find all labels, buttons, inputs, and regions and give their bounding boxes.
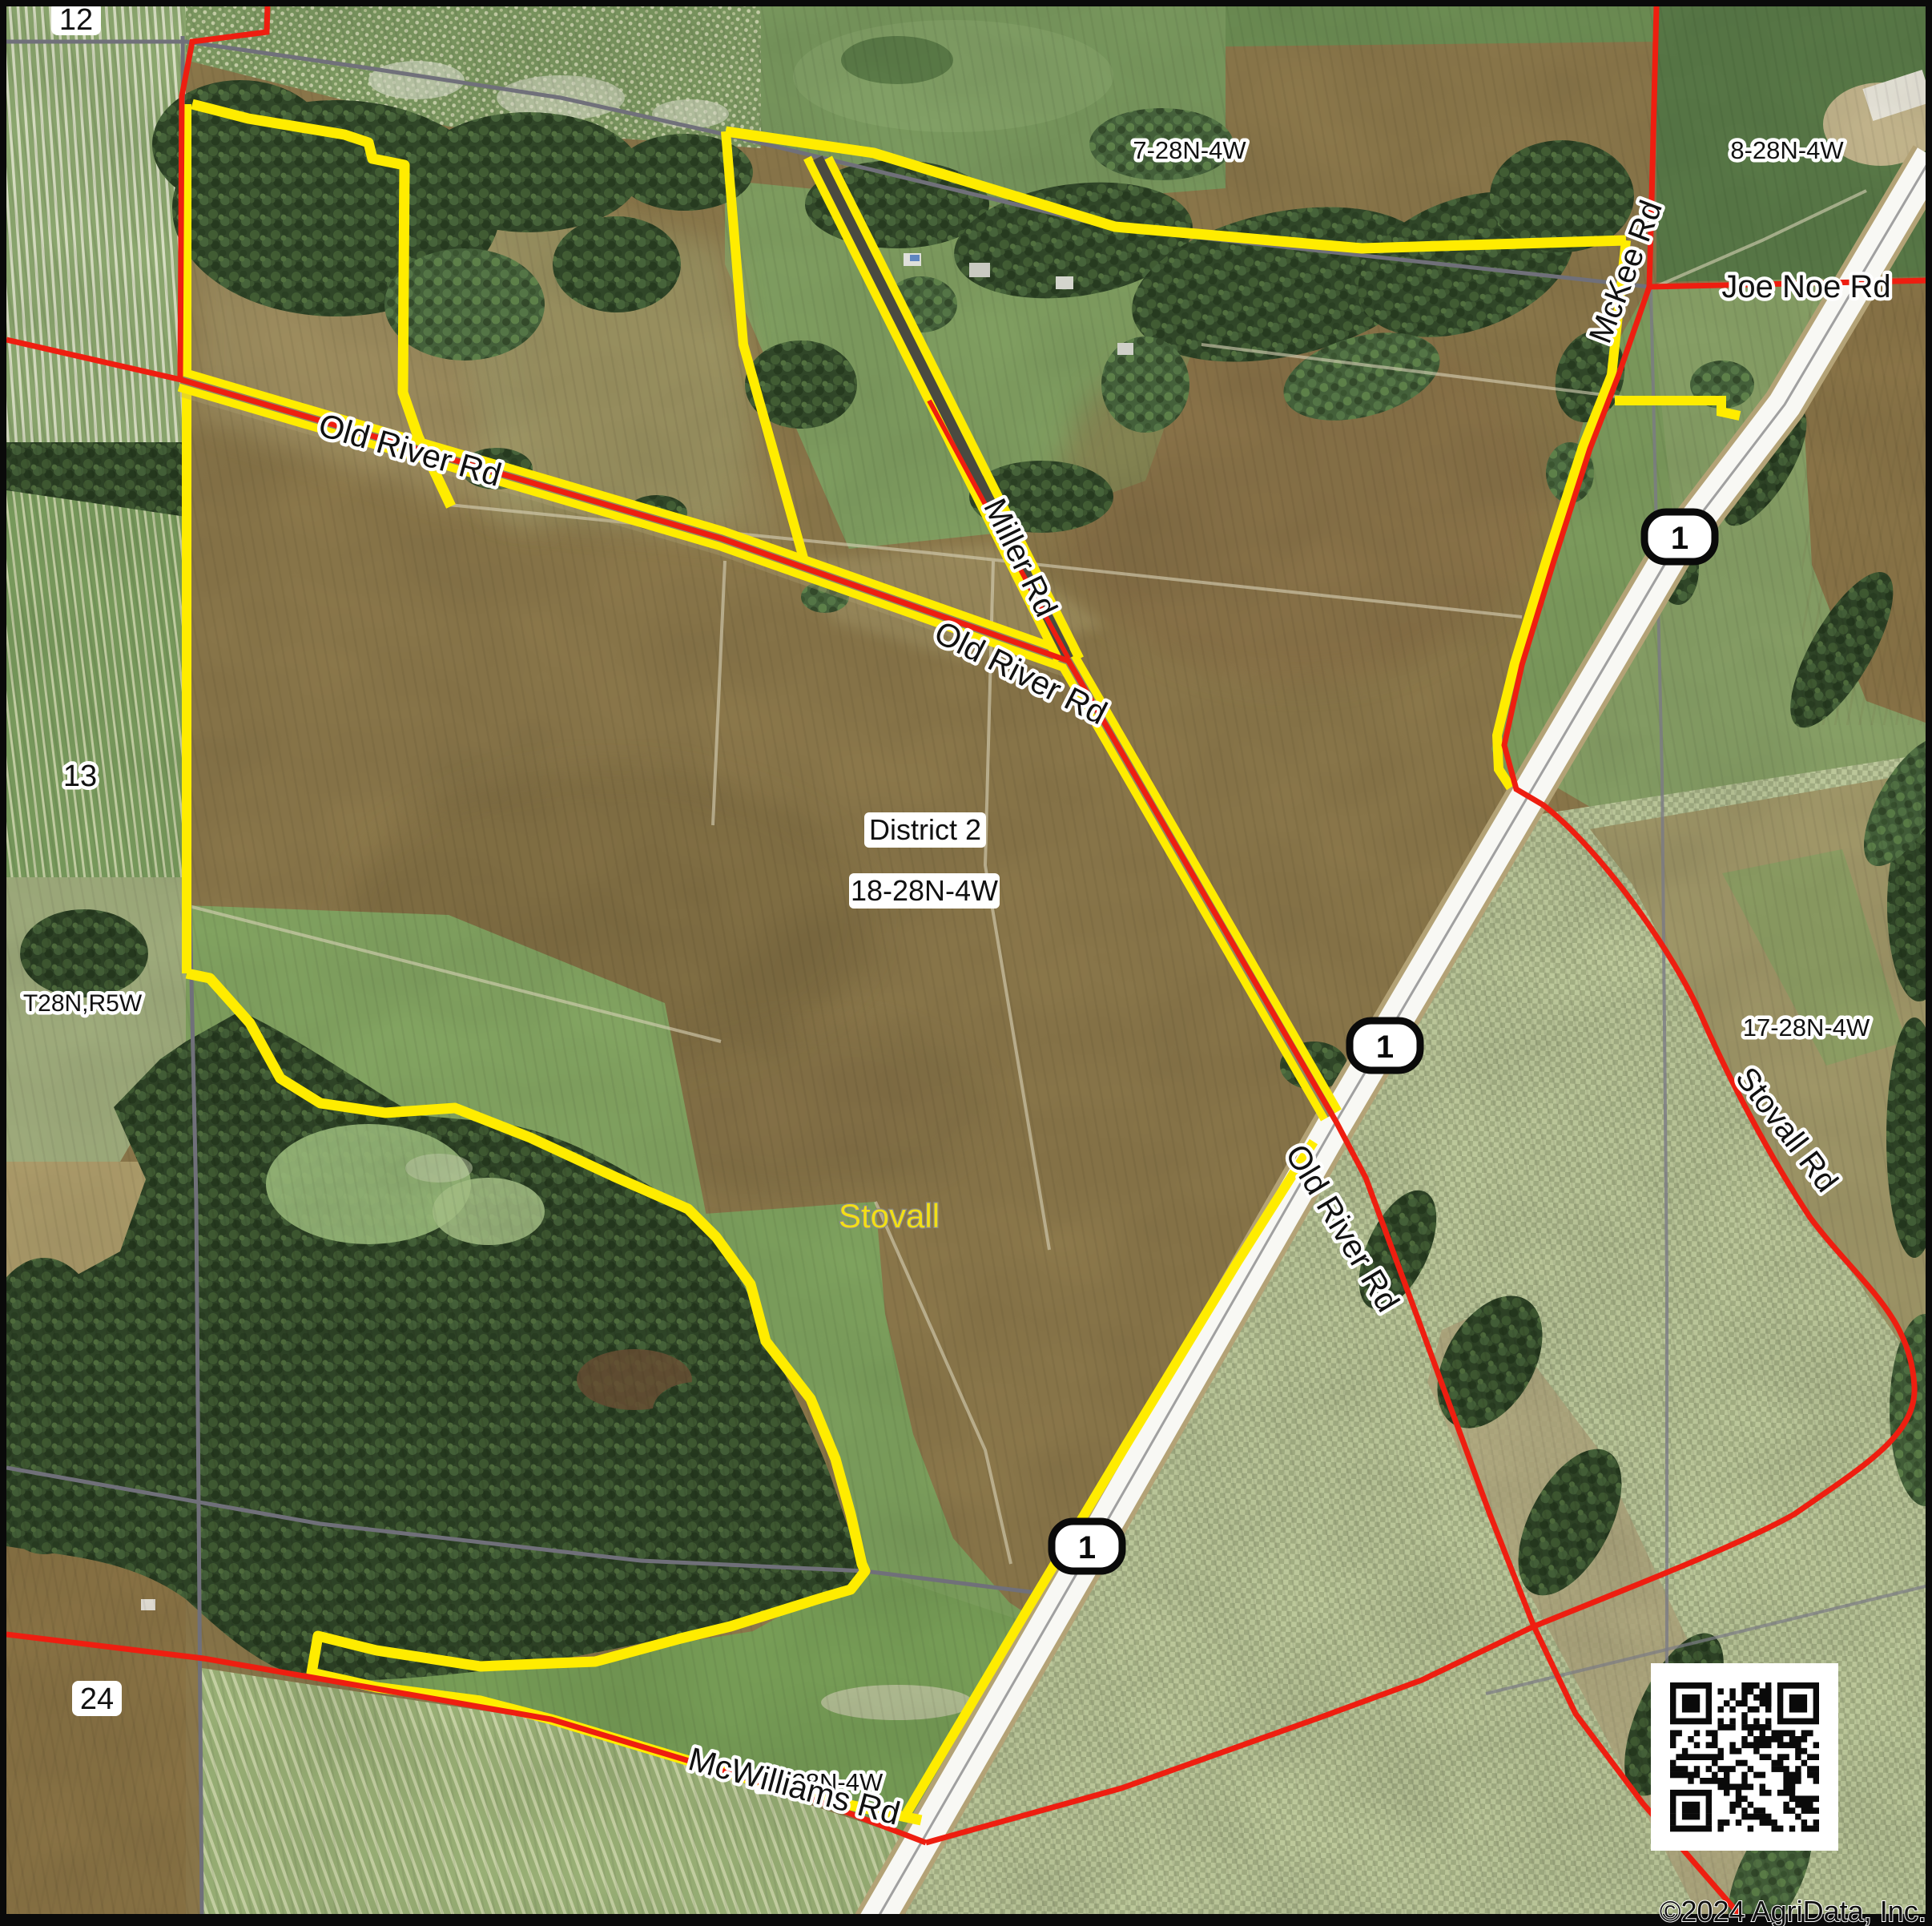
svg-text:1: 1 [1671, 521, 1688, 556]
svg-text:T28N,R5W: T28N,R5W [23, 990, 143, 1017]
svg-text:1: 1 [1078, 1530, 1096, 1565]
svg-text:13: 13 [63, 760, 97, 793]
svg-text:8-28N-4W: 8-28N-4W [1730, 136, 1844, 164]
svg-text:©2024 AgriData, Inc.: ©2024 AgriData, Inc. [1660, 1895, 1926, 1926]
svg-text:Stovall: Stovall [839, 1197, 940, 1235]
svg-text:24: 24 [80, 1682, 114, 1716]
svg-text:12: 12 [59, 3, 93, 37]
svg-text:District 2: District 2 [869, 813, 981, 846]
svg-text:17-28N-4W: 17-28N-4W [1743, 1013, 1870, 1042]
svg-text:1: 1 [1376, 1029, 1394, 1065]
svg-text:18-28N-4W: 18-28N-4W [851, 874, 998, 907]
svg-text:7-28N-4W: 7-28N-4W [1133, 136, 1246, 164]
svg-text:Joe Noe Rd: Joe Noe Rd [1721, 269, 1890, 304]
